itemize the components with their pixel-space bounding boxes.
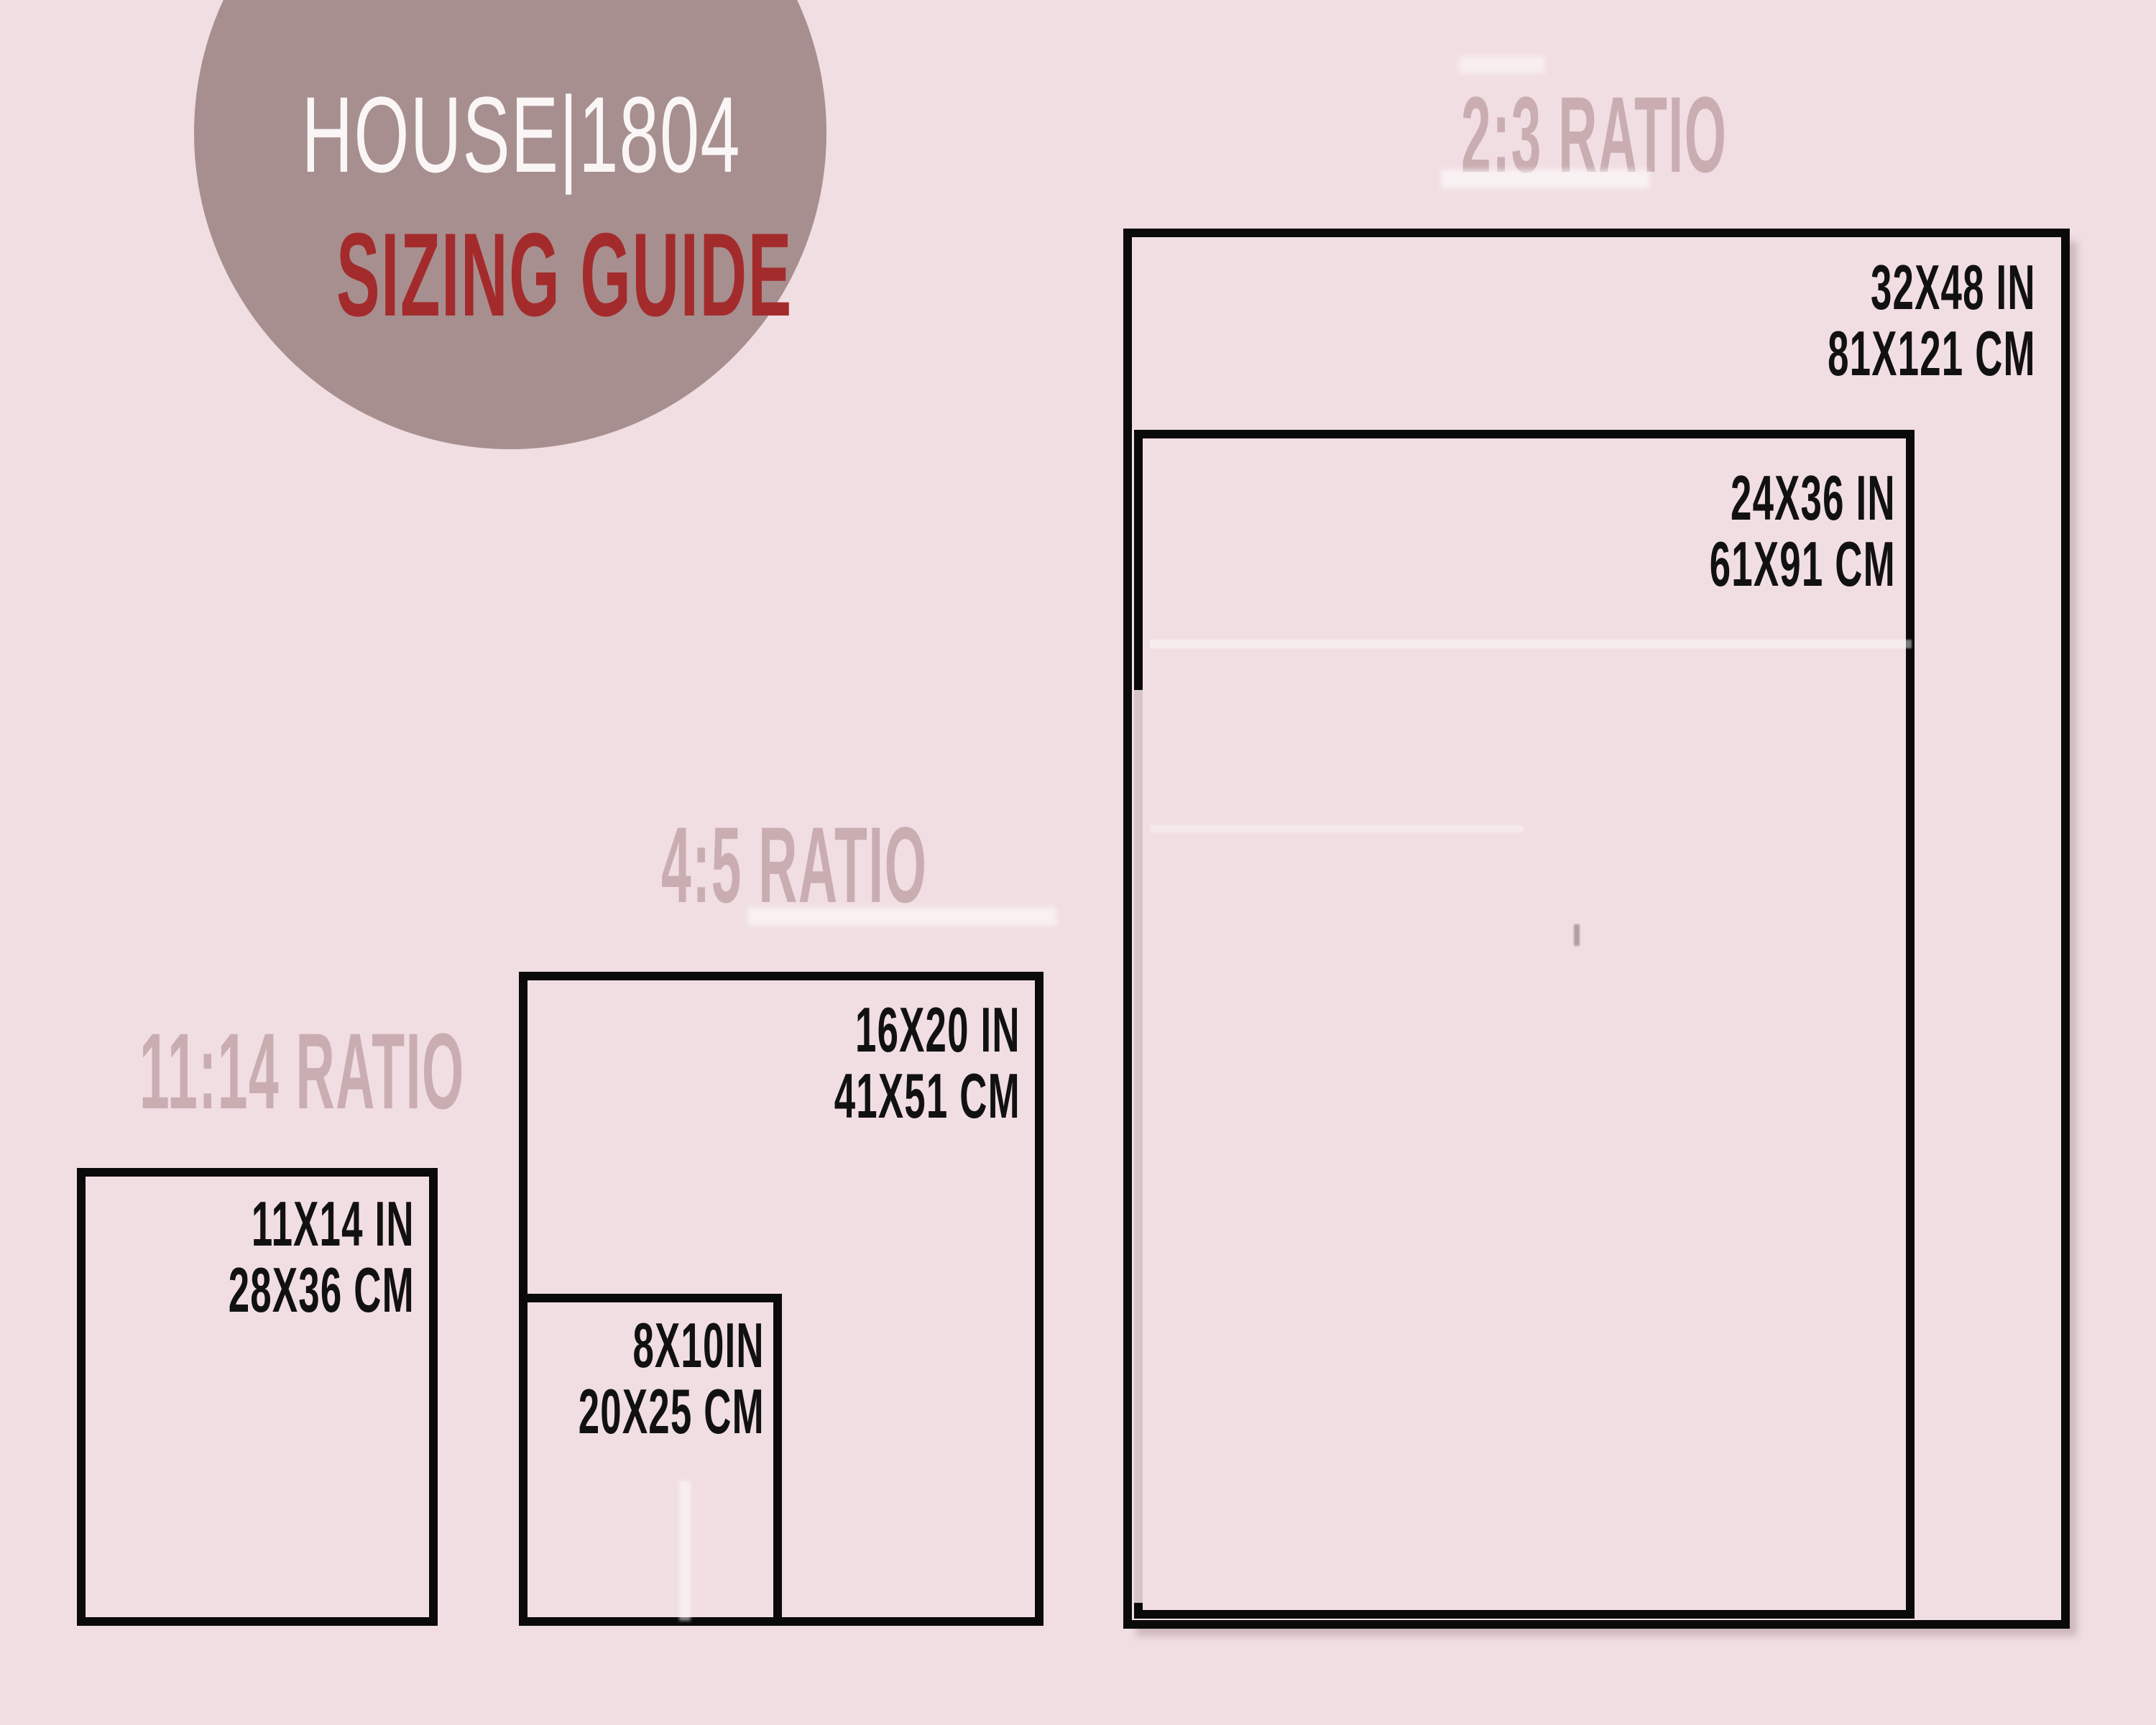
size-label-16x20: 16X20 IN 41X51 CM: [710, 997, 1021, 1129]
heading-ratio-11-14: 11:14 RATIO: [14, 1017, 517, 1125]
heading-ratio-4-5-text: 4:5 RATIO: [661, 811, 913, 919]
size-24x36-inches: 24X36 IN: [1710, 465, 1896, 531]
size-label-11x14: 11X14 IN 28X36 CM: [104, 1191, 415, 1323]
size-32x48-inches: 32X48 IN: [1828, 254, 2036, 321]
size-32x48-cm: 81X121 CM: [1828, 321, 2036, 387]
heading-ratio-2-3-text: 2:3 RATIO: [1461, 80, 1713, 188]
smudge-artifact: [1459, 56, 1545, 73]
brand-name-row: HOUSE|1804: [194, 80, 826, 188]
size-11x14-inches: 11X14 IN: [229, 1191, 415, 1257]
brand-name: HOUSE|1804: [302, 80, 719, 188]
heading-ratio-4-5: 4:5 RATIO: [535, 811, 1038, 919]
size-label-24x36: 24X36 IN 61X91 CM: [1585, 465, 1896, 597]
logo-tagline-row: SIZING GUIDE: [194, 216, 826, 334]
size-16x20-inches: 16X20 IN: [834, 997, 1021, 1063]
size-rect-11x14: 11X14 IN 28X36 CM: [77, 1168, 438, 1626]
size-label-8x10: 8X10IN 20X25 CM: [454, 1312, 765, 1445]
size-16x20-cm: 41X51 CM: [834, 1063, 1021, 1129]
size-rect-8x10: 8X10IN 20X25 CM: [519, 1294, 782, 1626]
logo-circle: HOUSE|1804 SIZING GUIDE: [194, 0, 826, 449]
logo-tagline: SIZING GUIDE: [336, 216, 684, 334]
size-8x10-inches: 8X10IN: [579, 1312, 765, 1379]
sizing-guide-poster: HOUSE|1804 SIZING GUIDE 2:3 RATIO 4:5 RA…: [0, 0, 2156, 1725]
size-label-32x48: 32X48 IN 81X121 CM: [1689, 254, 2036, 387]
heading-ratio-11-14-text: 11:14 RATIO: [139, 1017, 391, 1125]
size-rect-24x36: 24X36 IN 61X91 CM: [1134, 430, 1915, 1619]
size-24x36-cm: 61X91 CM: [1710, 531, 1896, 597]
size-11x14-cm: 28X36 CM: [229, 1257, 415, 1323]
size-8x10-cm: 20X25 CM: [579, 1379, 765, 1445]
heading-ratio-2-3: 2:3 RATIO: [1335, 80, 1838, 188]
